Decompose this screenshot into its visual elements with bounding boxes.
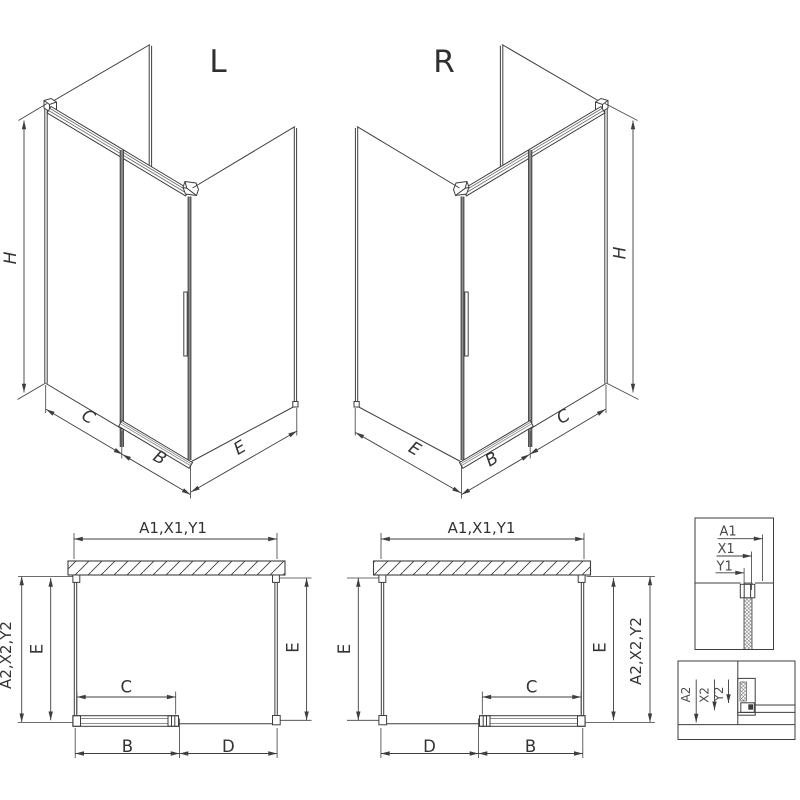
iso-r-door-handle [465, 292, 468, 356]
iso-r-dimensions: H E B C [355, 104, 638, 499]
iso-l-right-side-panel [192, 127, 299, 462]
plan-r-dim-a2x2y2: A2,X2,Y2 [627, 617, 645, 685]
plan-r-dim-e-left: E [335, 644, 354, 654]
detail-top-label-a1: A1 [720, 525, 737, 540]
detail-top-label-y1: Y1 [716, 559, 733, 574]
iso-r-bottom-rail [460, 384, 607, 469]
detail-bottom-gasket [748, 704, 753, 709]
plan-r-a1-dimension: A1,X1,Y1 [381, 519, 584, 559]
iso-l-dim-b: B [149, 447, 169, 470]
iso-l-door-handle [184, 292, 187, 356]
plan-r-dim-d: D [423, 737, 436, 756]
iso-r-dim-e: E [405, 438, 424, 461]
plan-l-wall [68, 561, 285, 575]
detail-view-bottom: A2 X2 Y2 [678, 661, 795, 740]
plan-l-glass-panels [73, 575, 280, 725]
plan-l-door-rail [73, 716, 179, 727]
detail-view-top: A1 X1 Y1 [695, 518, 774, 650]
iso-l-wall-profile [44, 99, 57, 384]
iso-l-dim-c: C [78, 406, 98, 429]
plan-r-dim-a1x1y1: A1,X1,Y1 [448, 519, 516, 537]
iso-l-dim-h: H [1, 251, 21, 264]
iso-view-left: L [1, 44, 298, 499]
iso-r-sliding-door [461, 150, 532, 460]
shower-enclosure-technical-drawing: L [0, 0, 800, 800]
plan-l-dim-e-right: E [284, 642, 303, 652]
plan-l-dim-a1x1y1: A1,X1,Y1 [139, 519, 207, 537]
plan-view-left: A1,X1,Y1 C B [0, 519, 312, 758]
detail-bottom-label-a2: A2 [679, 687, 693, 703]
plan-l-dim-b: B [122, 737, 133, 756]
detail-bottom-label-y2: Y2 [712, 687, 726, 703]
detail-bottom-frame [678, 661, 795, 740]
iso-l-left-side-panel [48, 45, 152, 167]
iso-r-wall-profile [596, 99, 609, 384]
plan-r-dim-b: B [525, 737, 536, 756]
detail-top-profile-cap [740, 584, 755, 598]
iso-r-dim-h: H [611, 246, 631, 259]
view-right-label: R [433, 44, 455, 80]
detail-bottom-leaders: A2 X2 Y2 [679, 680, 729, 723]
plan-view-right: A1,X1,Y1 C D [335, 519, 655, 758]
plan-r-door-rail [480, 716, 586, 727]
plan-l-a1-dimension: A1,X1,Y1 [74, 519, 277, 559]
plan-l-dim-d: D [222, 737, 235, 756]
iso-r-right-side-panel [500, 45, 604, 167]
plan-l-dim-e-left: E [28, 644, 47, 654]
plan-r-wall [374, 561, 591, 575]
iso-r-dim-b: B [482, 448, 502, 471]
view-left-label: L [209, 44, 227, 80]
plan-l-side-dimensions: E A2,X2,Y2 E [0, 577, 312, 723]
iso-l-sliding-door [120, 150, 191, 460]
plan-r-side-dimensions: E E A2,X2,Y2 [335, 577, 655, 723]
iso-l-dim-e: E [230, 437, 250, 460]
iso-r-dim-c: C [553, 405, 573, 428]
iso-r-left-side-panel [354, 127, 461, 462]
plan-r-dim-e-right: E [591, 642, 610, 652]
drawing-canvas: L [0, 0, 800, 800]
plan-r-c-dimension: C [482, 678, 581, 715]
detail-top-leaders: A1 X1 Y1 [716, 525, 763, 591]
plan-r-dim-c: C [526, 678, 538, 697]
plan-l-c-dimension: C [77, 678, 176, 715]
iso-view-right: R [354, 44, 639, 499]
plan-l-dim-a2x2y2: A2,X2,Y2 [0, 621, 15, 689]
iso-l-bottom-rail [46, 384, 193, 469]
detail-bottom-label-x2: X2 [698, 687, 712, 703]
plan-l-dim-c: C [121, 678, 133, 697]
detail-top-label-x1: X1 [718, 542, 735, 557]
